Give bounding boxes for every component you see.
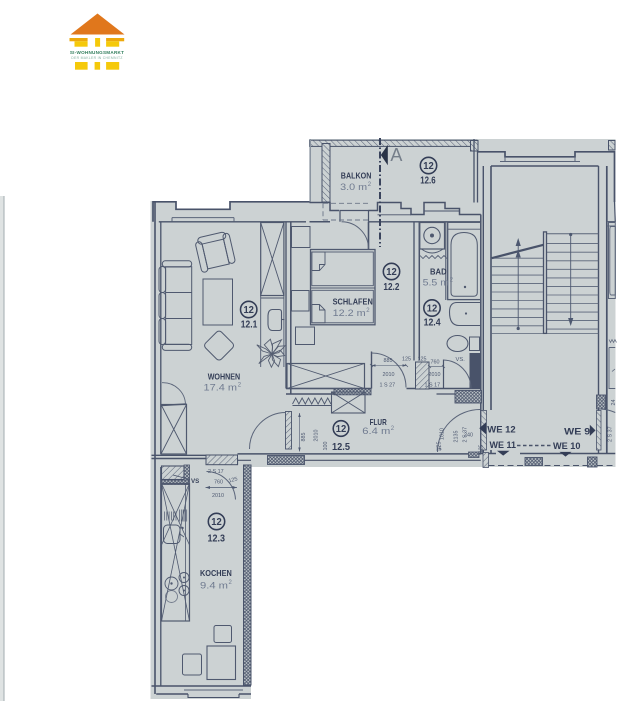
svg-text:2 S 17: 2 S 17 [208,469,224,475]
svg-text:12: 12 [211,517,222,528]
svg-text:12: 12 [336,424,347,435]
svg-text:2010: 2010 [314,430,320,442]
svg-text:KOCHEN: KOCHEN [200,568,232,578]
svg-text:2010: 2010 [383,372,395,378]
svg-text:12.3: 12.3 [208,533,226,544]
svg-text:2 S 37: 2 S 37 [608,426,614,442]
svg-text:BALKON: BALKON [341,171,372,181]
svg-text:100: 100 [323,442,329,451]
svg-text:12: 12 [423,161,434,172]
svg-text:SCHLAFEN: SCHLAFEN [333,298,373,307]
svg-text:6.4 m: 6.4 m [362,426,390,436]
svg-text:17.4 m: 17.4 m [204,383,238,393]
svg-text:DER MAKLER IN CHEMNITZ: DER MAKLER IN CHEMNITZ [71,56,122,60]
svg-text:2135: 2135 [454,431,460,443]
svg-text:885: 885 [384,358,393,364]
svg-text:1010: 1010 [440,428,446,440]
svg-text:3.0 m: 3.0 m [340,182,367,192]
svg-text:24: 24 [611,400,617,406]
svg-text:WE 11: WE 11 [490,440,517,451]
svg-text:760: 760 [214,480,223,486]
svg-text:12.1: 12.1 [241,320,258,331]
svg-text:SI-WOHNUNGSMARKT: SI-WOHNUNGSMARKT [70,50,124,55]
svg-text:12: 12 [386,267,397,278]
svg-text:5.5 m: 5.5 m [423,278,450,288]
svg-text:240: 240 [464,433,473,439]
svg-text:12.2: 12.2 [383,282,399,293]
svg-text:12.4: 12.4 [424,317,441,328]
svg-text:12.5: 12.5 [332,442,351,453]
svg-text:VS: VS [191,478,199,485]
svg-text:15: 15 [436,447,442,453]
svg-text:885: 885 [301,433,307,442]
svg-text:12: 12 [243,305,254,316]
svg-text:125: 125 [402,357,411,363]
svg-text:125: 125 [479,444,485,453]
svg-text:2010: 2010 [212,493,224,499]
svg-text:WE 9: WE 9 [564,426,590,437]
svg-text:12.2 m: 12.2 m [333,308,366,318]
svg-text:VS.: VS. [456,357,466,363]
svg-text:12: 12 [427,304,438,315]
svg-text:A: A [390,145,402,165]
svg-text:12.6: 12.6 [420,175,436,186]
svg-text:WE 12: WE 12 [487,424,515,435]
svg-text:2010: 2010 [429,372,441,378]
svg-text:9.4 m: 9.4 m [200,580,228,590]
svg-text:WE 10: WE 10 [553,441,581,452]
svg-text:125: 125 [418,357,427,363]
svg-text:1 S 27: 1 S 27 [380,383,396,389]
svg-text:1 S 17: 1 S 17 [425,383,441,389]
svg-text:760: 760 [431,360,440,366]
svg-text:BAD: BAD [430,267,447,277]
svg-text:WOHNEN: WOHNEN [208,371,241,381]
